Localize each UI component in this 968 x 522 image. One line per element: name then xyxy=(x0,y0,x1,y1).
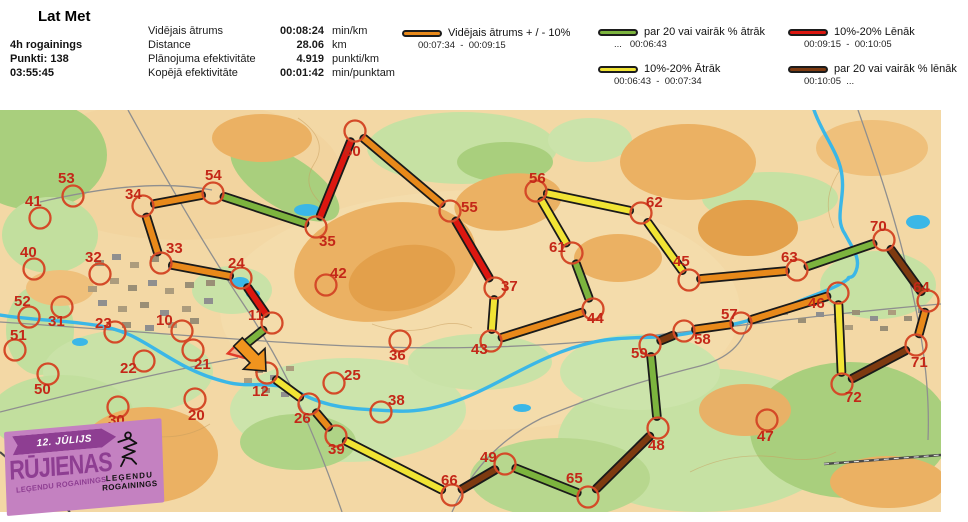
control-label-34: 34 xyxy=(125,186,142,203)
control-label-58: 58 xyxy=(694,331,711,348)
town-block xyxy=(130,262,139,268)
town-block xyxy=(182,306,191,312)
control-label-55: 55 xyxy=(461,199,478,216)
control-label-45: 45 xyxy=(673,253,690,270)
legend-label: par 20 vai vairāk % ātrāk xyxy=(644,26,765,38)
legend-label: par 20 vai vairāk % lēnāk xyxy=(834,63,957,75)
control-label-31: 31 xyxy=(48,313,65,330)
control-label-52: 52 xyxy=(14,293,31,310)
legend-range: 00:07:34 - 00:09:15 xyxy=(402,40,570,51)
stats-table: Vidējais ātrums00:08:24min/kmDistance28.… xyxy=(148,24,395,80)
logo-brand: LEĢENDU ROGAININGS xyxy=(97,428,161,492)
control-label-35: 35 xyxy=(319,233,336,250)
town-block xyxy=(112,254,121,260)
town-block xyxy=(870,316,878,321)
town-block xyxy=(204,298,213,304)
stat-unit: km xyxy=(324,38,395,52)
legend-color-line xyxy=(788,66,828,73)
stat-row-0: Vidējais ātrums00:08:24min/km xyxy=(148,24,395,38)
app: Lat Met 4h rogainings Punkti: 138 03:55:… xyxy=(0,0,968,522)
route-segment-72-46 xyxy=(839,305,842,372)
legend-color-line xyxy=(598,66,638,73)
control-label-48: 48 xyxy=(648,437,665,454)
legend-range: 00:10:05 ... xyxy=(788,76,957,87)
legend-item-fast20: par 20 vai vairāk % ātrāk... 00:06:43 xyxy=(598,26,765,50)
town-block xyxy=(286,366,294,371)
town-block xyxy=(165,288,174,294)
control-label-21: 21 xyxy=(194,356,211,373)
control-label-12: 12 xyxy=(252,383,269,400)
stat-value: 00:08:24 xyxy=(266,24,324,38)
town-block xyxy=(148,280,157,286)
stat-row-2: Plānojuma efektivitāte4.919punkti/km xyxy=(148,52,395,66)
control-label-22: 22 xyxy=(120,360,137,377)
control-label-39: 39 xyxy=(328,441,345,458)
town-block xyxy=(244,378,252,383)
legend-color-line xyxy=(788,29,828,36)
control-label-57: 57 xyxy=(721,306,738,323)
control-label-49: 49 xyxy=(480,449,497,466)
stat-label: Kopējā efektivitāte xyxy=(148,66,266,80)
event-time: 03:55:45 xyxy=(10,66,82,80)
legend-label: 10%-20% Ātrāk xyxy=(644,63,720,75)
control-label-62: 62 xyxy=(646,194,663,211)
town-block xyxy=(88,286,97,292)
legend-item-fast10: 10%-20% Ātrāk00:06:43 - 00:07:34 xyxy=(598,63,720,87)
legend-label: 10%-20% Lēnāk xyxy=(834,26,915,38)
header: Lat Met 4h rogainings Punkti: 138 03:55:… xyxy=(0,0,968,110)
stat-value: 4.919 xyxy=(266,52,324,66)
control-label-23: 23 xyxy=(95,315,112,332)
stat-unit: min/punktam xyxy=(324,66,395,80)
control-label-53: 53 xyxy=(58,170,75,187)
stat-value: 28.06 xyxy=(266,38,324,52)
town-block xyxy=(110,278,119,284)
town-block xyxy=(190,318,199,324)
town-block xyxy=(185,282,194,288)
town-block xyxy=(206,280,215,286)
page-title: Lat Met xyxy=(38,8,91,25)
town-block xyxy=(845,325,853,330)
town-block xyxy=(904,316,912,321)
control-label-41: 41 xyxy=(25,193,42,210)
control-label-26: 26 xyxy=(294,410,311,427)
town-block xyxy=(888,310,896,315)
control-label-54: 54 xyxy=(205,167,222,184)
event-summary: 4h rogainings Punkti: 138 03:55:45 xyxy=(10,38,82,80)
legend-item-avg: Vidējais ātrums + / - 10%00:07:34 - 00:0… xyxy=(402,27,570,51)
control-label-60: 60 xyxy=(344,143,361,160)
legend-item-slow10: 10%-20% Lēnāk00:09:15 - 00:10:05 xyxy=(788,26,915,50)
control-label-33: 33 xyxy=(166,240,183,257)
control-label-32: 32 xyxy=(85,249,102,266)
town-block xyxy=(816,312,824,317)
legend-color-line xyxy=(598,29,638,36)
control-label-46: 46 xyxy=(808,295,825,312)
orienteer-runner-icon xyxy=(113,430,144,469)
legend-range: ... 00:06:43 xyxy=(598,39,765,50)
control-label-51: 51 xyxy=(10,327,27,344)
legend-label: Vidējais ātrums + / - 10% xyxy=(448,27,570,39)
event-name: 4h rogainings xyxy=(10,38,82,52)
event-logo: 12. JŪLIJS RŪJIENAS LEĢENDU ROGAININGS L… xyxy=(4,418,164,516)
control-label-44: 44 xyxy=(587,310,604,327)
control-label-63: 63 xyxy=(781,249,798,266)
control-label-72: 72 xyxy=(845,389,862,406)
control-label-36: 36 xyxy=(389,347,406,364)
control-label-25: 25 xyxy=(344,367,361,384)
control-label-50: 50 xyxy=(34,381,51,398)
legend-range: 00:09:15 - 00:10:05 xyxy=(788,39,915,50)
control-label-38: 38 xyxy=(388,392,405,409)
control-label-24: 24 xyxy=(228,255,245,272)
town-block xyxy=(880,326,888,331)
control-label-47: 47 xyxy=(757,428,774,445)
stat-row-3: Kopējā efektivitāte00:01:42min/punktam xyxy=(148,66,395,80)
stat-label: Distance xyxy=(148,38,266,52)
control-label-10: 10 xyxy=(156,312,173,329)
town-block xyxy=(140,302,149,308)
stat-row-1: Distance28.06km xyxy=(148,38,395,52)
town-block xyxy=(98,300,107,306)
legend-range: 00:06:43 - 00:07:34 xyxy=(598,76,720,87)
control-label-20: 20 xyxy=(188,407,205,424)
stat-unit: min/km xyxy=(324,24,395,38)
stat-value: 00:01:42 xyxy=(266,66,324,80)
control-label-71: 71 xyxy=(911,354,928,371)
town-block xyxy=(118,306,127,312)
control-label-61: 61 xyxy=(549,239,566,256)
town-block xyxy=(852,310,860,315)
town-block xyxy=(128,285,137,291)
control-label-40: 40 xyxy=(20,244,37,261)
control-label-11: 11 xyxy=(248,307,264,324)
legend-color-line xyxy=(402,30,442,37)
route-segment-37-43 xyxy=(492,300,494,329)
control-label-66: 66 xyxy=(441,472,458,489)
control-label-56: 56 xyxy=(529,170,546,187)
stat-unit: punkti/km xyxy=(324,52,395,66)
town-block xyxy=(798,318,806,323)
control-label-65: 65 xyxy=(566,470,583,487)
stat-label: Plānojuma efektivitāte xyxy=(148,52,266,66)
control-label-64: 64 xyxy=(913,279,930,296)
control-label-42: 42 xyxy=(330,265,347,282)
legend-item-slow20: par 20 vai vairāk % lēnāk00:10:05 ... xyxy=(788,63,957,87)
control-label-37: 37 xyxy=(501,278,518,295)
stat-label: Vidējais ātrums xyxy=(148,24,266,38)
control-label-59: 59 xyxy=(631,345,648,362)
event-points: Punkti: 138 xyxy=(10,52,82,66)
control-label-70: 70 xyxy=(870,218,887,235)
control-label-43: 43 xyxy=(471,341,488,358)
town-block xyxy=(145,325,154,331)
